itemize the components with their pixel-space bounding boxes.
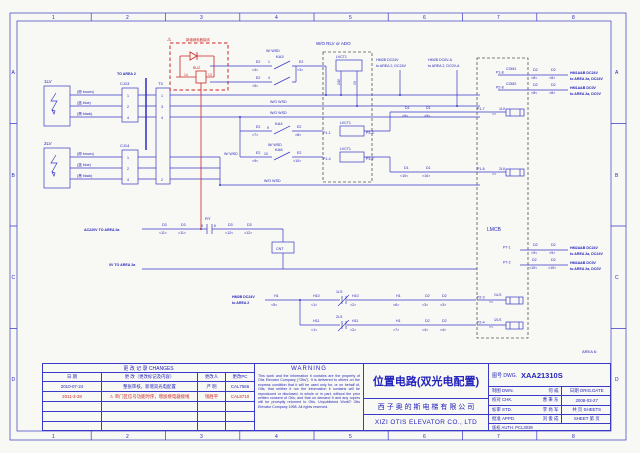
power-label: AC220V TO AREA 2a [84,228,120,232]
label: 1LV [499,107,506,111]
pin: >8> [549,76,555,80]
conn-label: D2 [551,258,556,262]
t3-label: T3 [158,81,163,86]
conn-label: D3 [247,223,252,227]
conn-label: H11 [352,319,358,323]
addition-note: 新增继电器接线 [186,37,210,42]
pin: <4< [422,328,428,332]
pin: >6> [393,303,399,307]
zone-row: B [615,173,619,179]
com1-label: COM1 [506,67,516,71]
conn-label: H1 [396,294,401,298]
conn-label: D1 [426,106,431,110]
pin: 4 [161,116,163,120]
src-label: to AREA 2 [232,301,249,305]
pin: 9 [267,126,269,130]
pin: <3< [422,303,428,307]
pin: >8> [549,91,555,95]
pin: 3 [161,105,163,109]
warning-title: WARNING [255,364,363,373]
ka6-label: KA6 [275,147,283,152]
change-date: 2010-07-24 [43,382,101,391]
arrow: << [489,325,493,329]
changes-title: 更 改 记 录 CHANGES [43,364,254,372]
conn-label: H10 [352,294,359,298]
com2-label: COM2 [506,82,516,86]
col-header-pc: 更改PC [225,373,254,381]
dwn-row: 制图 DWN.何 威 [489,387,561,395]
pin: <10< [529,266,537,270]
conn-label: D3 [228,223,233,227]
pin: 1 [161,94,163,98]
pin: 2 [161,178,163,182]
conn-label: D2 [551,83,556,87]
pin: <5< [271,303,277,307]
bus-label: W/O WSD [270,100,287,104]
conn-label: E2 [256,76,260,80]
sensor-1lv-label: 1LV [44,79,52,84]
power-rows: AC220V TO AREA 2a D3 <11< D3 >11> RY 5 6… [84,216,477,269]
sensor-2lv-label: 2LV [44,141,52,146]
pin: P1-7 [477,107,485,111]
dwg-block: 图号 DWG. XAA21310S 制图 DWN.何 威 日期 ORIG.DAT… [488,364,611,430]
power-label: 0V TO AREA 2a [109,263,136,267]
dest-label: HM1A&B DC0V [570,86,597,90]
zone-col: 7 [497,15,500,21]
sheet-num-label: SHEET 第 页 [561,415,611,423]
pin: 5 [201,224,203,228]
pin: <7< [252,133,258,137]
dest-label: to AREA 2a, DC0V [570,92,601,96]
col-header-person: 更改人 [197,373,225,381]
lvct1-label: LVCT1 [340,121,351,125]
conn-label: H11 [313,319,319,323]
change-person: 钱胜平 [197,392,225,401]
pin: 2 [127,105,129,109]
feed-label: to AREA 2, DC24V [376,64,407,68]
bus-label: W/O WSD [264,179,281,183]
rlv-ado-header: W/O RLV or ADO [316,41,351,46]
zone-row: D [12,377,16,383]
zone-col: 8 [572,434,575,440]
conn-label: D1 [426,166,431,170]
pin: P1-4 [323,157,331,161]
feed-label: to AREA 2, DC0V-A [428,64,460,68]
dest-label: to AREA 2a, DC24V [570,77,603,81]
limit-switch-rows: HM2B DC24V to AREA 2 H1 <5< H10 <1< 1LS … [232,290,523,332]
pin: <12< [225,231,233,235]
change-desc: ⚠ 单门区信号功能时序，增加继电器接线 [101,392,197,401]
conn-label: E2 [297,151,301,155]
conn-label: D2 [532,258,537,262]
pin: 4 [268,76,270,80]
zone-row: C [12,275,16,281]
wire-color-label: (棕 brown) [77,89,94,94]
sheets-label: 共 页 SHEETS [561,406,611,414]
pin: <9< [402,114,408,118]
conn-label: E2 [256,151,260,155]
pin: <9< [531,251,537,255]
switch-label: 2LS [336,315,343,319]
col-header-desc: 更 改（更改标记及内容） [101,373,197,381]
wire-color-label: (黑 black) [77,174,92,178]
zone-col: 8 [572,15,575,21]
conn-label: E2 [299,60,303,64]
conn-label: E2 [256,60,260,64]
conn-label: D1 [404,166,409,170]
warning-block: WARNING This work and the information it… [254,364,363,430]
pin: P2-4 [477,321,485,325]
auth-row: 版权 AUTH. PCL3039 [489,423,611,431]
dest-label: HM2A&B DC24V [570,246,599,250]
change-row-empty [43,411,254,421]
pin: >9> [424,114,430,118]
pin: <1< [311,328,317,332]
pin: >11> [178,231,186,235]
pin: P1-1 [323,131,331,135]
cj13-label: CJ13 [120,81,130,86]
pin: 14 [184,73,188,77]
zone-col: 1 [52,434,55,440]
pin: P2-3 [477,296,485,300]
pin: 10 [264,152,268,156]
pin: <8< [531,91,537,95]
conn-label: D2 [533,83,538,87]
pin: <1< [311,303,317,307]
conn-label: D1 [405,106,410,110]
conn-label: H1 [274,294,279,298]
pin: >3> [440,303,446,307]
zone-col: 2 [126,15,129,21]
bus-label: W/O WSD [270,111,287,115]
pin: 1 [268,60,270,64]
dest-label: HM2A&B DC0V [570,261,597,265]
zone-row: C [615,275,619,281]
pin: >3> [297,68,303,72]
cnt-label: CNT [276,247,284,251]
change-desc: 整张审核，新增双光电配置 [101,382,197,391]
conn-label: D3 [162,223,167,227]
sensor-wires: (棕 brown) (蓝 blue) (黑 black) (棕 brown) (… [70,89,156,179]
appd-row: 批准 APPD.刘 俊 成 [489,415,561,423]
feed-label: HM2B DC24V [376,58,399,62]
com-rows: COM1 P1-8 D2 <8< D2 >8> HM1A&B DC24V to … [496,67,603,96]
pin: <9< [252,159,258,163]
change-row-empty [43,401,254,411]
feed-label: HM2B DC0V-A [428,58,453,62]
pin: >10> [293,159,301,163]
chk-row: 校对 CHK.曹 秉 东 [489,396,561,404]
pin: P3-3 [366,131,374,135]
pin: >10> [548,266,556,270]
sensor-1lv: 1LV [44,79,70,126]
drawing-title-block: 位置电路(双光电配置) 西 子 奥 的 斯 电 梯 有 限 公 司 XIZI O… [363,364,488,430]
change-pc: CAL7566 [225,382,254,391]
conn-label: D2 [533,243,538,247]
pin: <10< [400,174,408,178]
lvct-group: W/O RLV or ADO LVCT1 24V 0V LVCT1 P1-1 P… [316,41,506,182]
conn-label: E2 [256,125,260,129]
conn-label: E2 [297,125,301,129]
pin: <4< [252,68,258,72]
dwg-number-row: 图号 DWG. XAA21310S [489,364,611,386]
zone-row: B [12,173,16,179]
conn-label: D2 [442,319,447,323]
conn-label: D2 [425,319,430,323]
connector-t3: T3 1 3 4 2 [156,81,170,184]
pin: >12> [244,231,252,235]
buz-label: BUZ [193,66,201,70]
change-person: 严 明 [197,382,225,391]
change-row: 2010-07-24 整张审核，新增双光电配置 严 明 CAL7566 [43,381,254,391]
zone-row: A [12,70,16,76]
zone-col: 6 [423,15,426,21]
pin: P1-6 [477,167,485,171]
conn-label: H1 [396,319,401,323]
change-pc: CAL8710 [225,392,254,401]
area6-label: AREA 6: [582,349,597,354]
dest-label: to AREA 2a, DC0V [570,267,601,271]
changes-table: 更 改 记 录 CHANGES 日 期 更 改（更改标记及内容） 更改人 更改P… [43,364,254,430]
zone-col: 6 [423,434,426,440]
company-en: XIZI OTIS ELEVATOR CO., LTD [364,414,488,430]
zone-col: 1 [52,15,55,21]
conn-label: D2 [551,68,556,72]
src-label: HM2B DC24V [232,295,255,299]
sensor-2lv: 2LV [44,141,70,188]
lvct1-label: LVCT1 [336,55,347,59]
pin: 4 [127,178,129,182]
arrow: << [492,112,496,116]
wsd-label: W/ WSD [266,49,280,53]
pin: P7-2 [503,261,511,265]
switch-label: 1LS [336,290,343,294]
pin: P1-8 [496,71,504,75]
drawing-page: 1 2 3 4 5 6 7 8 1 2 3 4 5 6 7 8 A B C D … [0,0,640,453]
zone-col: 2 [126,434,129,440]
dwg-number-label: 图号 DWG. [492,372,517,379]
change-row-empty [43,421,254,430]
pin: P3-2 [366,157,374,161]
drawing-title: 位置电路(双光电配置) [364,364,488,398]
zone-col: 7 [497,434,500,440]
cj14-label: CJ14 [120,143,130,148]
pin: P2-8 [496,86,504,90]
dwg-number: XAA21310S [521,371,563,380]
pin: 1 [127,156,129,160]
connector-cj14: CJ14 1 2 4 [120,143,138,184]
pin: >4> [440,328,446,332]
conn-label: D2 [442,294,447,298]
dest-label: HM1A&B DC24V [570,71,599,75]
p7-rows: P7-1 D2 <9< D2 >9> HM2A&B DC24V to AREA … [503,243,603,271]
conn-label: D2 [425,294,430,298]
dest-label: to AREA 2a, DC24V [570,252,603,256]
pin: >10> [422,174,430,178]
ry-label: RY [205,216,211,221]
wire-color-label: (蓝 blue) [77,100,91,105]
pin: >9> [549,251,555,255]
relay-ka4-ka6-contacts: KA4 9 E2 <7< E2 >8> W/ WSD W/ WSD KA6 10… [224,116,323,163]
wire-color-label: (黑 black) [77,112,92,116]
pin: 4 [127,116,129,120]
warning-icon: ⚠ [167,37,172,43]
warning-icon: ⚠ [110,394,114,400]
title-block: 更 改 记 录 CHANGES 日 期 更 改（更改标记及内容） 更改人 更改P… [42,363,611,431]
zone-row: D [615,377,619,383]
wire-color-label: (蓝 blue) [77,162,91,167]
lmcb-boundary: LMCB [477,58,528,338]
zone-col: 5 [349,434,352,440]
arrow: << [492,172,496,176]
zone-col: 4 [275,15,278,21]
conn-label: H10 [313,294,320,298]
pin: <11< [159,231,167,235]
zone-col: 5 [349,15,352,21]
label: 2LV [499,167,506,171]
warning-body: This work and the information it contain… [255,373,363,410]
pin: >7> [393,328,399,332]
pin: <5< [252,84,258,88]
pin: >2> [350,303,356,307]
origdate-value: 2008-03-27 [561,396,611,404]
conn-label: D2 [551,243,556,247]
hm2b-feeds: HM2B DC24V to AREA 2, DC24V HM2B DC0V-A … [376,58,460,107]
pin: 6 [214,224,216,228]
change-date: 2011-3-28 [43,392,101,401]
zone-col: 4 [275,434,278,440]
conn-label: D3 [181,223,186,227]
zone-col: 3 [200,15,203,21]
ka4-label: KA4 [275,121,283,126]
pin: 2 [127,167,129,171]
std-row: 标审 STD.李 尚 军 [489,406,561,414]
label: /1LS [494,293,502,297]
company-cn: 西 子 奥 的 斯 电 梯 有 限 公 司 [364,398,488,414]
lmcb-label: LMCB [487,227,502,233]
change-row: 2011-3-28 ⚠ 单门区信号功能时序，增加继电器接线 钱胜平 CAL871… [43,391,254,401]
conn-label: D2 [533,68,538,72]
pin: >2> [350,328,356,332]
p17-p16-rows: P1-7 << 1LV P1-6 << 2LV [477,107,524,176]
arrow: << [489,300,493,304]
zone-col: 3 [200,434,203,440]
ka3-label: KA3 [276,54,284,59]
wire-color-label: (棕 brown) [77,151,94,156]
origdate-label: 日期 ORIG.DATE [561,387,611,395]
col-header-date: 日 期 [43,373,101,381]
label: /2LS [494,318,502,322]
zone-row: A [615,70,619,76]
wsd-label: W/ WSD [224,152,238,156]
lvct1-label: LVCT1 [340,147,351,151]
pin: 24V [337,78,341,85]
connector-cj13: CJ13 1 2 4 [120,81,138,122]
to-area2-label: TO AREA 2 [117,72,136,76]
pin: P7-1 [503,246,511,250]
pin: >8> [295,133,301,137]
pin: 13 [208,73,212,77]
pin: <8< [531,76,537,80]
pin: 0V [353,80,357,85]
pin: 1 [127,94,129,98]
